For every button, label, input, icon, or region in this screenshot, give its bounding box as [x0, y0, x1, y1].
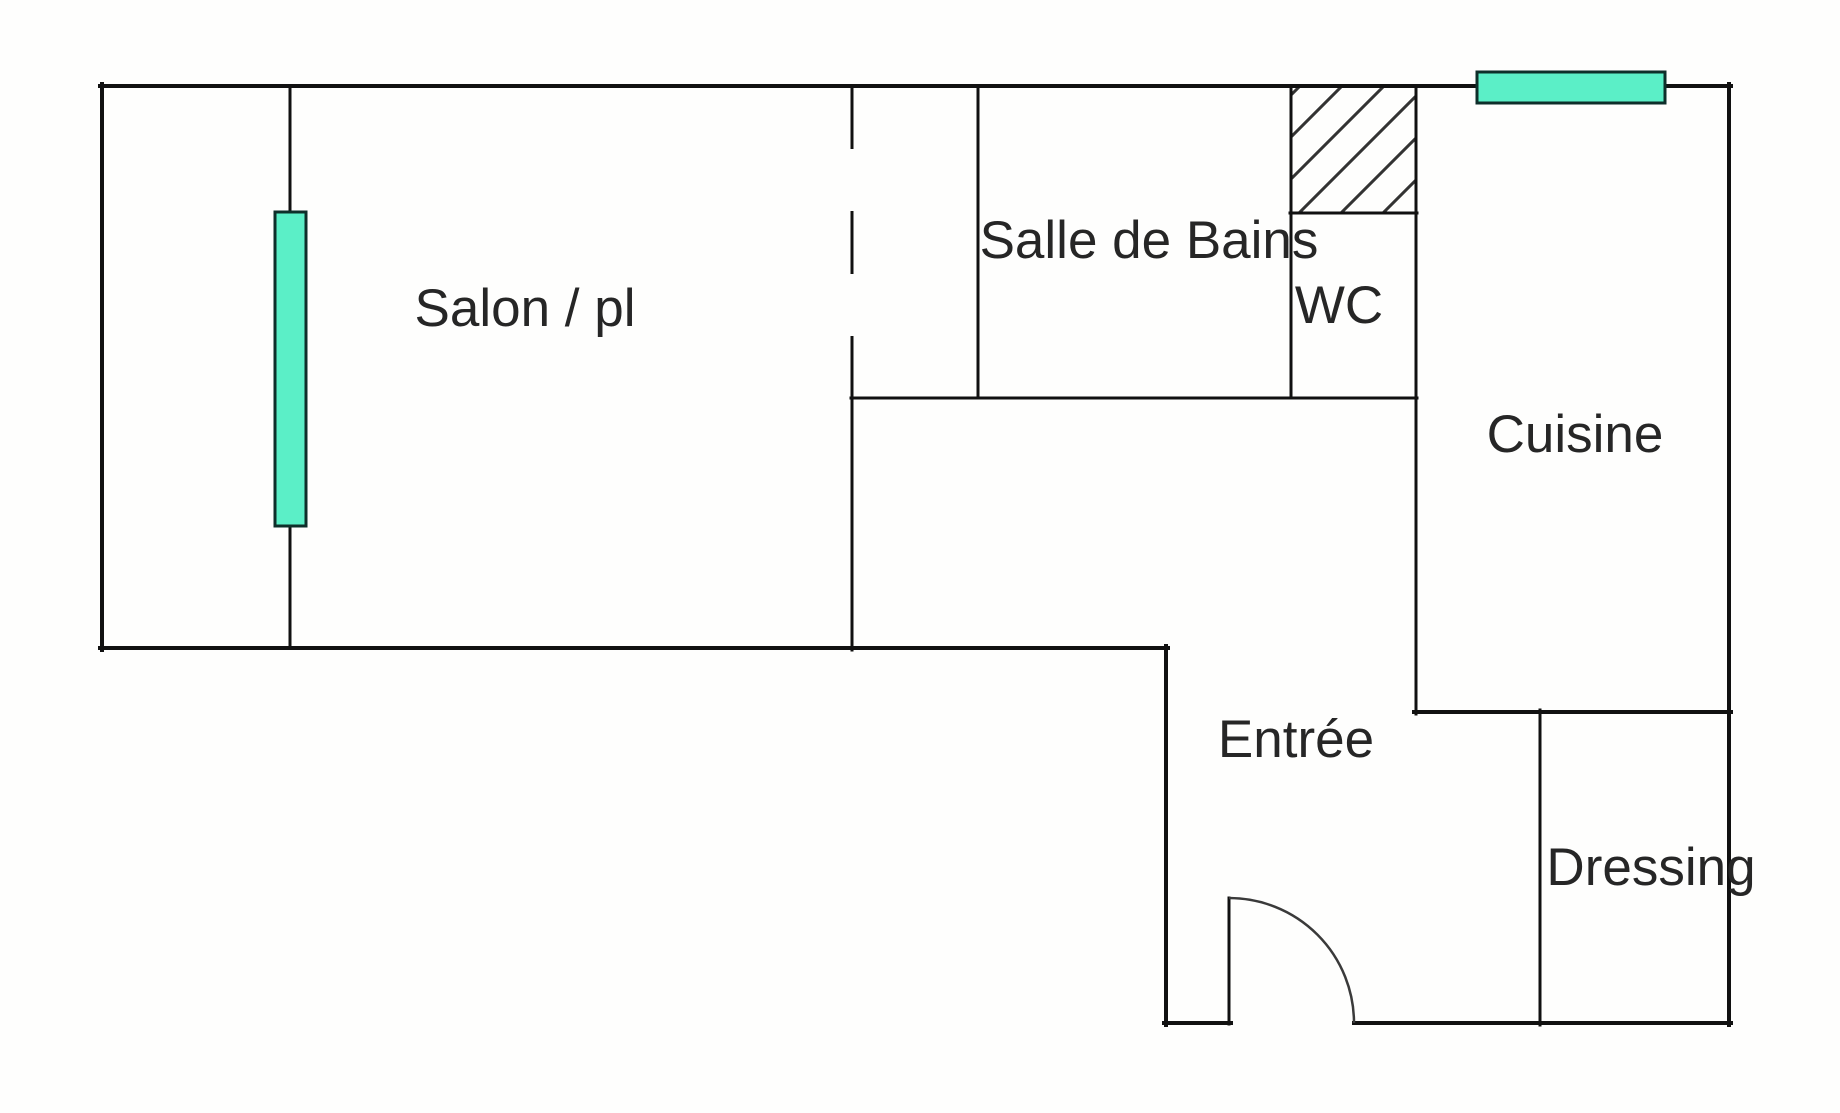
duct-shaft-hatched-area	[1291, 87, 1416, 213]
room-label-entree: Entrée	[1218, 710, 1374, 769]
floor-plan-drawing: Salon / pl Salle de Bains WC Cuisine Ent…	[0, 0, 1840, 1113]
room-label-dressing: Dressing	[1546, 838, 1755, 897]
room-label-wc: WC	[1295, 276, 1383, 335]
room-label-salon: Salon / pl	[415, 279, 636, 338]
salon-window	[275, 212, 306, 526]
room-label-salle-de-bains: Salle de Bains	[980, 211, 1319, 270]
entry-door-swing-arc	[1229, 898, 1354, 1023]
cuisine-window	[1477, 72, 1665, 103]
room-label-cuisine: Cuisine	[1487, 405, 1664, 464]
floor-plan: Salon / pl Salle de Bains WC Cuisine Ent…	[0, 0, 1840, 1113]
